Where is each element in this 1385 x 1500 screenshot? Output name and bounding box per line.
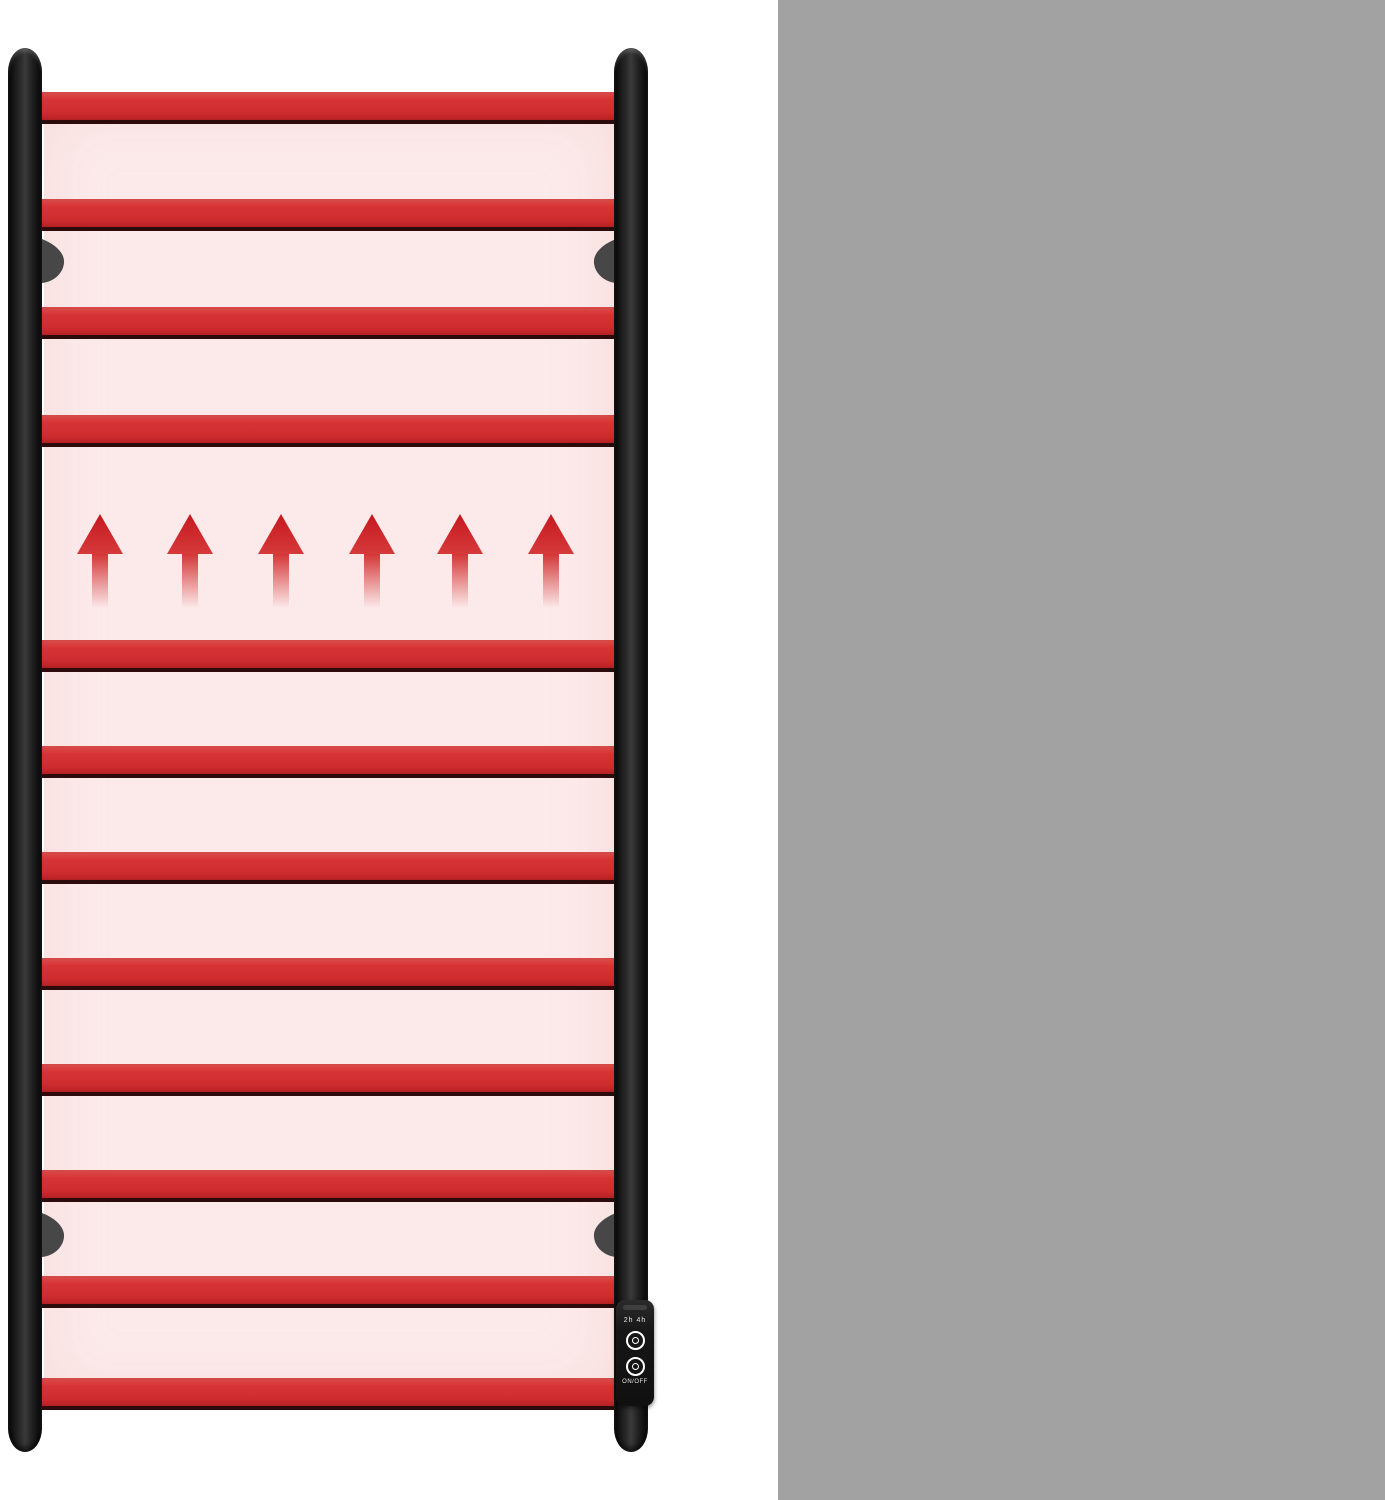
heating-bar xyxy=(28,958,630,990)
heat-arrow-icon xyxy=(437,514,483,608)
power-button[interactable] xyxy=(626,1357,645,1376)
heating-bar xyxy=(28,1276,630,1308)
heating-bar xyxy=(28,852,630,884)
heating-bar xyxy=(28,640,630,672)
control-panel: 2h 4h ON/OFF xyxy=(616,1300,654,1406)
heating-bar xyxy=(28,307,630,339)
heat-arrow-icon xyxy=(528,514,574,608)
wall-bracket-top-right xyxy=(592,238,616,284)
timer-button[interactable] xyxy=(626,1331,645,1350)
features-panel: 15 min Quick Heat Within xyxy=(778,0,1385,1500)
wall-bracket-top-left xyxy=(42,238,66,284)
timer-label: 2h 4h xyxy=(624,1317,647,1324)
heat-arrow-icon xyxy=(167,514,213,608)
product-infographic: 2h 4h ON/OFF xyxy=(0,0,1385,1500)
right-rail xyxy=(614,48,648,1452)
left-rail xyxy=(8,48,42,1452)
heating-bar xyxy=(28,92,630,124)
heat-arrow-icon xyxy=(258,514,304,608)
heating-bar xyxy=(28,1378,630,1410)
heating-bar xyxy=(28,1170,630,1202)
heating-bar xyxy=(28,1064,630,1096)
heat-arrow-icon xyxy=(349,514,395,608)
control-panel-slot xyxy=(623,1305,647,1310)
wall-bracket-bottom-right xyxy=(592,1212,616,1258)
wall-bracket-bottom-left xyxy=(42,1212,66,1258)
heating-bar xyxy=(28,199,630,231)
on-off-label: ON/OFF xyxy=(622,1379,648,1385)
heat-arrow-icon xyxy=(77,514,123,608)
heating-bar xyxy=(28,415,630,447)
heating-bar xyxy=(28,746,630,778)
